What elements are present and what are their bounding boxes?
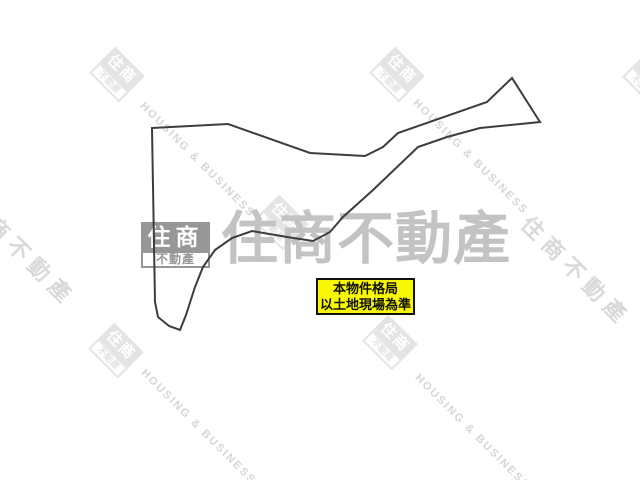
disclaimer-note: 本物件格局 以土地現場為準 xyxy=(316,278,415,315)
disclaimer-line-1: 本物件格局 xyxy=(318,281,413,297)
land-outline-drawing xyxy=(0,0,640,480)
property-land-plan-image: 住商 不動產 住商 不動產 住商 不動產 住商 不動產 住商 不動產 住商 不動… xyxy=(0,0,640,480)
disclaimer-line-2: 以土地現場為準 xyxy=(318,297,413,313)
